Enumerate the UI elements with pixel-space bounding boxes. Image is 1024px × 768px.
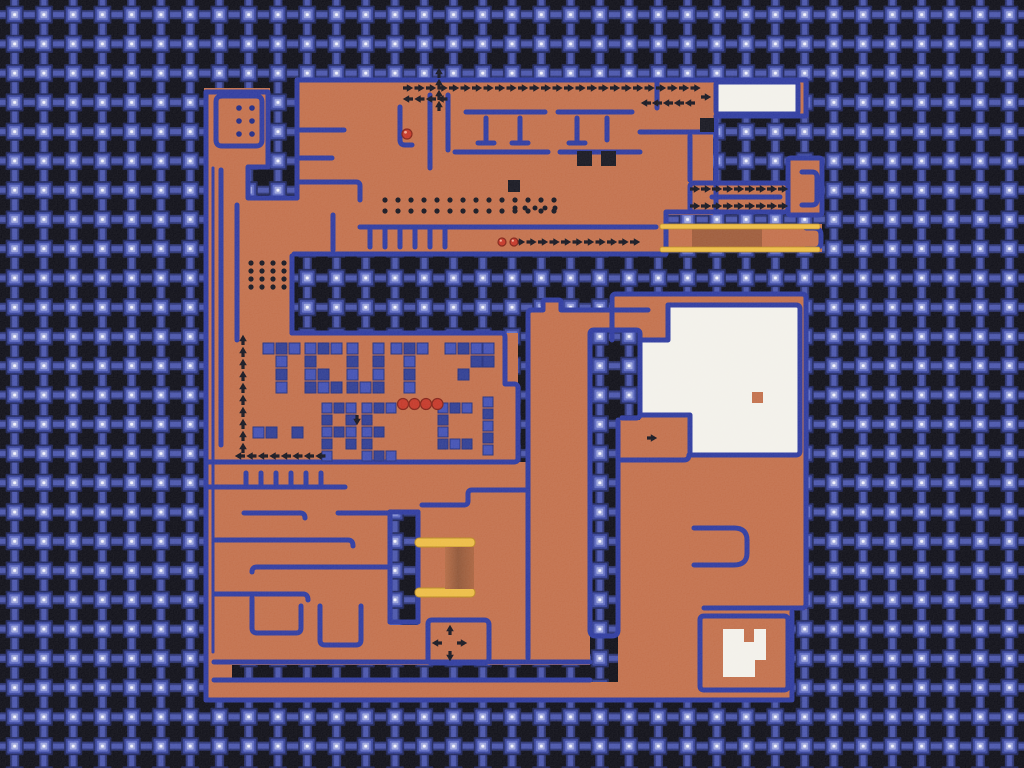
game-map-canvas[interactable] (0, 0, 1024, 768)
game-screenshot[interactable]: TEUT -RE (0, 0, 1024, 768)
grain-overlay (0, 0, 1024, 768)
noise-texture (0, 0, 1024, 768)
